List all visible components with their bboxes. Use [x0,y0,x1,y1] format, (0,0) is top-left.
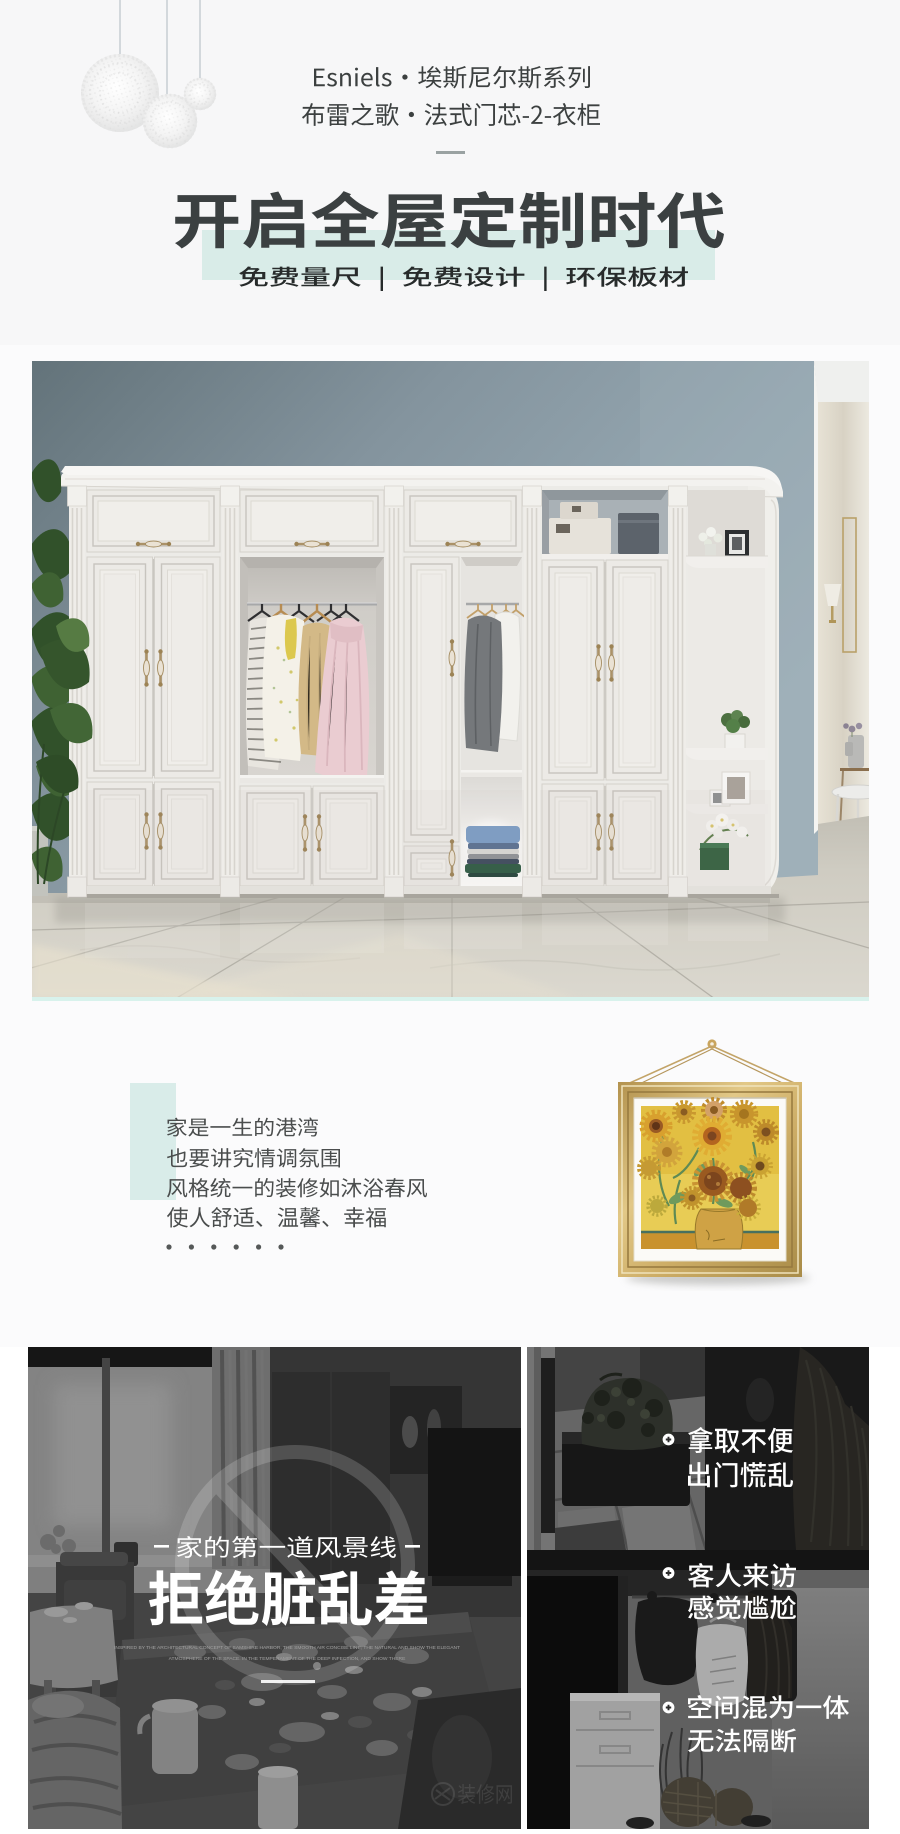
svg-text:ATMOSPHERE OF THE SPACE. IN TH: ATMOSPHERE OF THE SPACE. IN THE TEMPERAM… [169,1656,406,1662]
svg-text:INSPIRED BY THE ARCHITECTURAL: INSPIRED BY THE ARCHITECTURAL CONCEPT OF… [114,1645,460,1651]
